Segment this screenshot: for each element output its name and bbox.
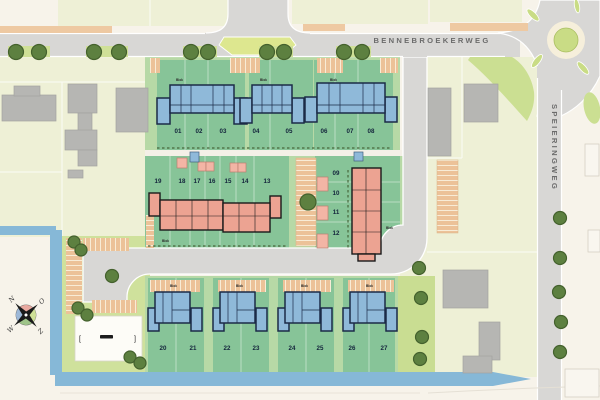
- plot-number-26: 26: [349, 345, 356, 352]
- tree-icon: [277, 45, 292, 60]
- plot-number-20: 20: [160, 345, 167, 352]
- tree-icon: [87, 45, 102, 60]
- plot-number-18: 18: [179, 178, 186, 185]
- street-label-bennebroekerweg: BENNEBROEKERWEG: [373, 36, 490, 45]
- tree-icon: [260, 45, 275, 60]
- plot-number-05: 05: [286, 128, 293, 135]
- house-block-09-12: [352, 168, 381, 261]
- plot-number-14: 14: [242, 178, 249, 185]
- block-label: Blok: [301, 284, 308, 288]
- parking-strip-court: [83, 238, 129, 251]
- plot-number-17: 17: [194, 178, 201, 185]
- tree-icon: [106, 270, 119, 283]
- plot-number-03: 03: [220, 128, 227, 135]
- tree-icon: [415, 292, 428, 305]
- plot-number-08: 08: [368, 128, 375, 135]
- site-plan-page: [ ]: [0, 0, 600, 400]
- plot-number-04: 04: [253, 128, 260, 135]
- sidewalk: [450, 23, 528, 31]
- parking-strip: [230, 58, 260, 73]
- block-label: Blok: [170, 284, 177, 288]
- plot-number-25: 25: [317, 345, 324, 352]
- plot-number-10: 10: [333, 190, 340, 197]
- street-label-speieringweg: SPEIERINGWEG: [550, 104, 559, 191]
- plot-number-19: 19: [155, 178, 162, 185]
- building-sign-text-bar: [100, 335, 113, 339]
- tree-icon: [416, 331, 429, 344]
- tree-icon: [554, 252, 567, 265]
- site-plan-map: [ ]: [0, 0, 600, 400]
- plot-number-02: 02: [196, 128, 203, 135]
- tree-icon: [553, 286, 566, 299]
- water-channel-west: [50, 230, 62, 375]
- tree-icon: [201, 45, 216, 60]
- plot-number-11: 11: [333, 209, 340, 216]
- tree-icon: [184, 45, 199, 60]
- plot-number-22: 22: [224, 345, 231, 352]
- tree-icon: [32, 45, 47, 60]
- parking-strip: [380, 58, 398, 73]
- tree-icon: [134, 357, 146, 369]
- plot-number-13: 13: [264, 178, 271, 185]
- plot-number-16: 16: [209, 178, 216, 185]
- tree-icon: [413, 262, 426, 275]
- tree-icon: [81, 309, 93, 321]
- sign-bracket-left: [: [79, 336, 81, 343]
- plot-number-09: 09: [333, 170, 340, 177]
- block-label: Blok: [330, 78, 337, 82]
- plot-number-07: 07: [347, 128, 354, 135]
- parking-strip: [150, 58, 160, 73]
- plot-number-12: 12: [333, 230, 340, 237]
- roundabout-center: [554, 28, 578, 52]
- block-label: Blok: [162, 239, 169, 243]
- plot-number-23: 23: [253, 345, 260, 352]
- tree-icon: [555, 316, 568, 329]
- plot-number-15: 15: [225, 178, 232, 185]
- sign-bracket-right: ]: [134, 336, 136, 343]
- parking-strip: [146, 215, 154, 248]
- tree-icon: [300, 194, 316, 210]
- block-label: Blok: [176, 78, 183, 82]
- parking-strip: [317, 58, 343, 73]
- plot-number-01: 01: [175, 128, 182, 135]
- sidewalk: [303, 24, 345, 31]
- plot-number-27: 27: [381, 345, 388, 352]
- parking-strip-court: [92, 300, 137, 313]
- tree-icon: [554, 212, 567, 225]
- tree-icon: [414, 353, 427, 366]
- tree-icon: [337, 45, 352, 60]
- block-label: Blok: [386, 226, 393, 230]
- tree-icon: [554, 346, 567, 359]
- tree-icon: [112, 45, 127, 60]
- tree-icon: [9, 45, 24, 60]
- block-label: Blok: [236, 284, 243, 288]
- parking-strip-east: [437, 160, 458, 233]
- plot-number-21: 21: [190, 345, 197, 352]
- water-channel-connector: [0, 226, 56, 235]
- sidewalk: [0, 26, 112, 33]
- block-label: Blok: [260, 78, 267, 82]
- plot-number-24: 24: [289, 345, 296, 352]
- tree-icon: [75, 244, 87, 256]
- block-label: Blok: [366, 284, 373, 288]
- plot-number-06: 06: [321, 128, 328, 135]
- tree-icon: [355, 45, 370, 60]
- water-channel-south: [55, 372, 531, 386]
